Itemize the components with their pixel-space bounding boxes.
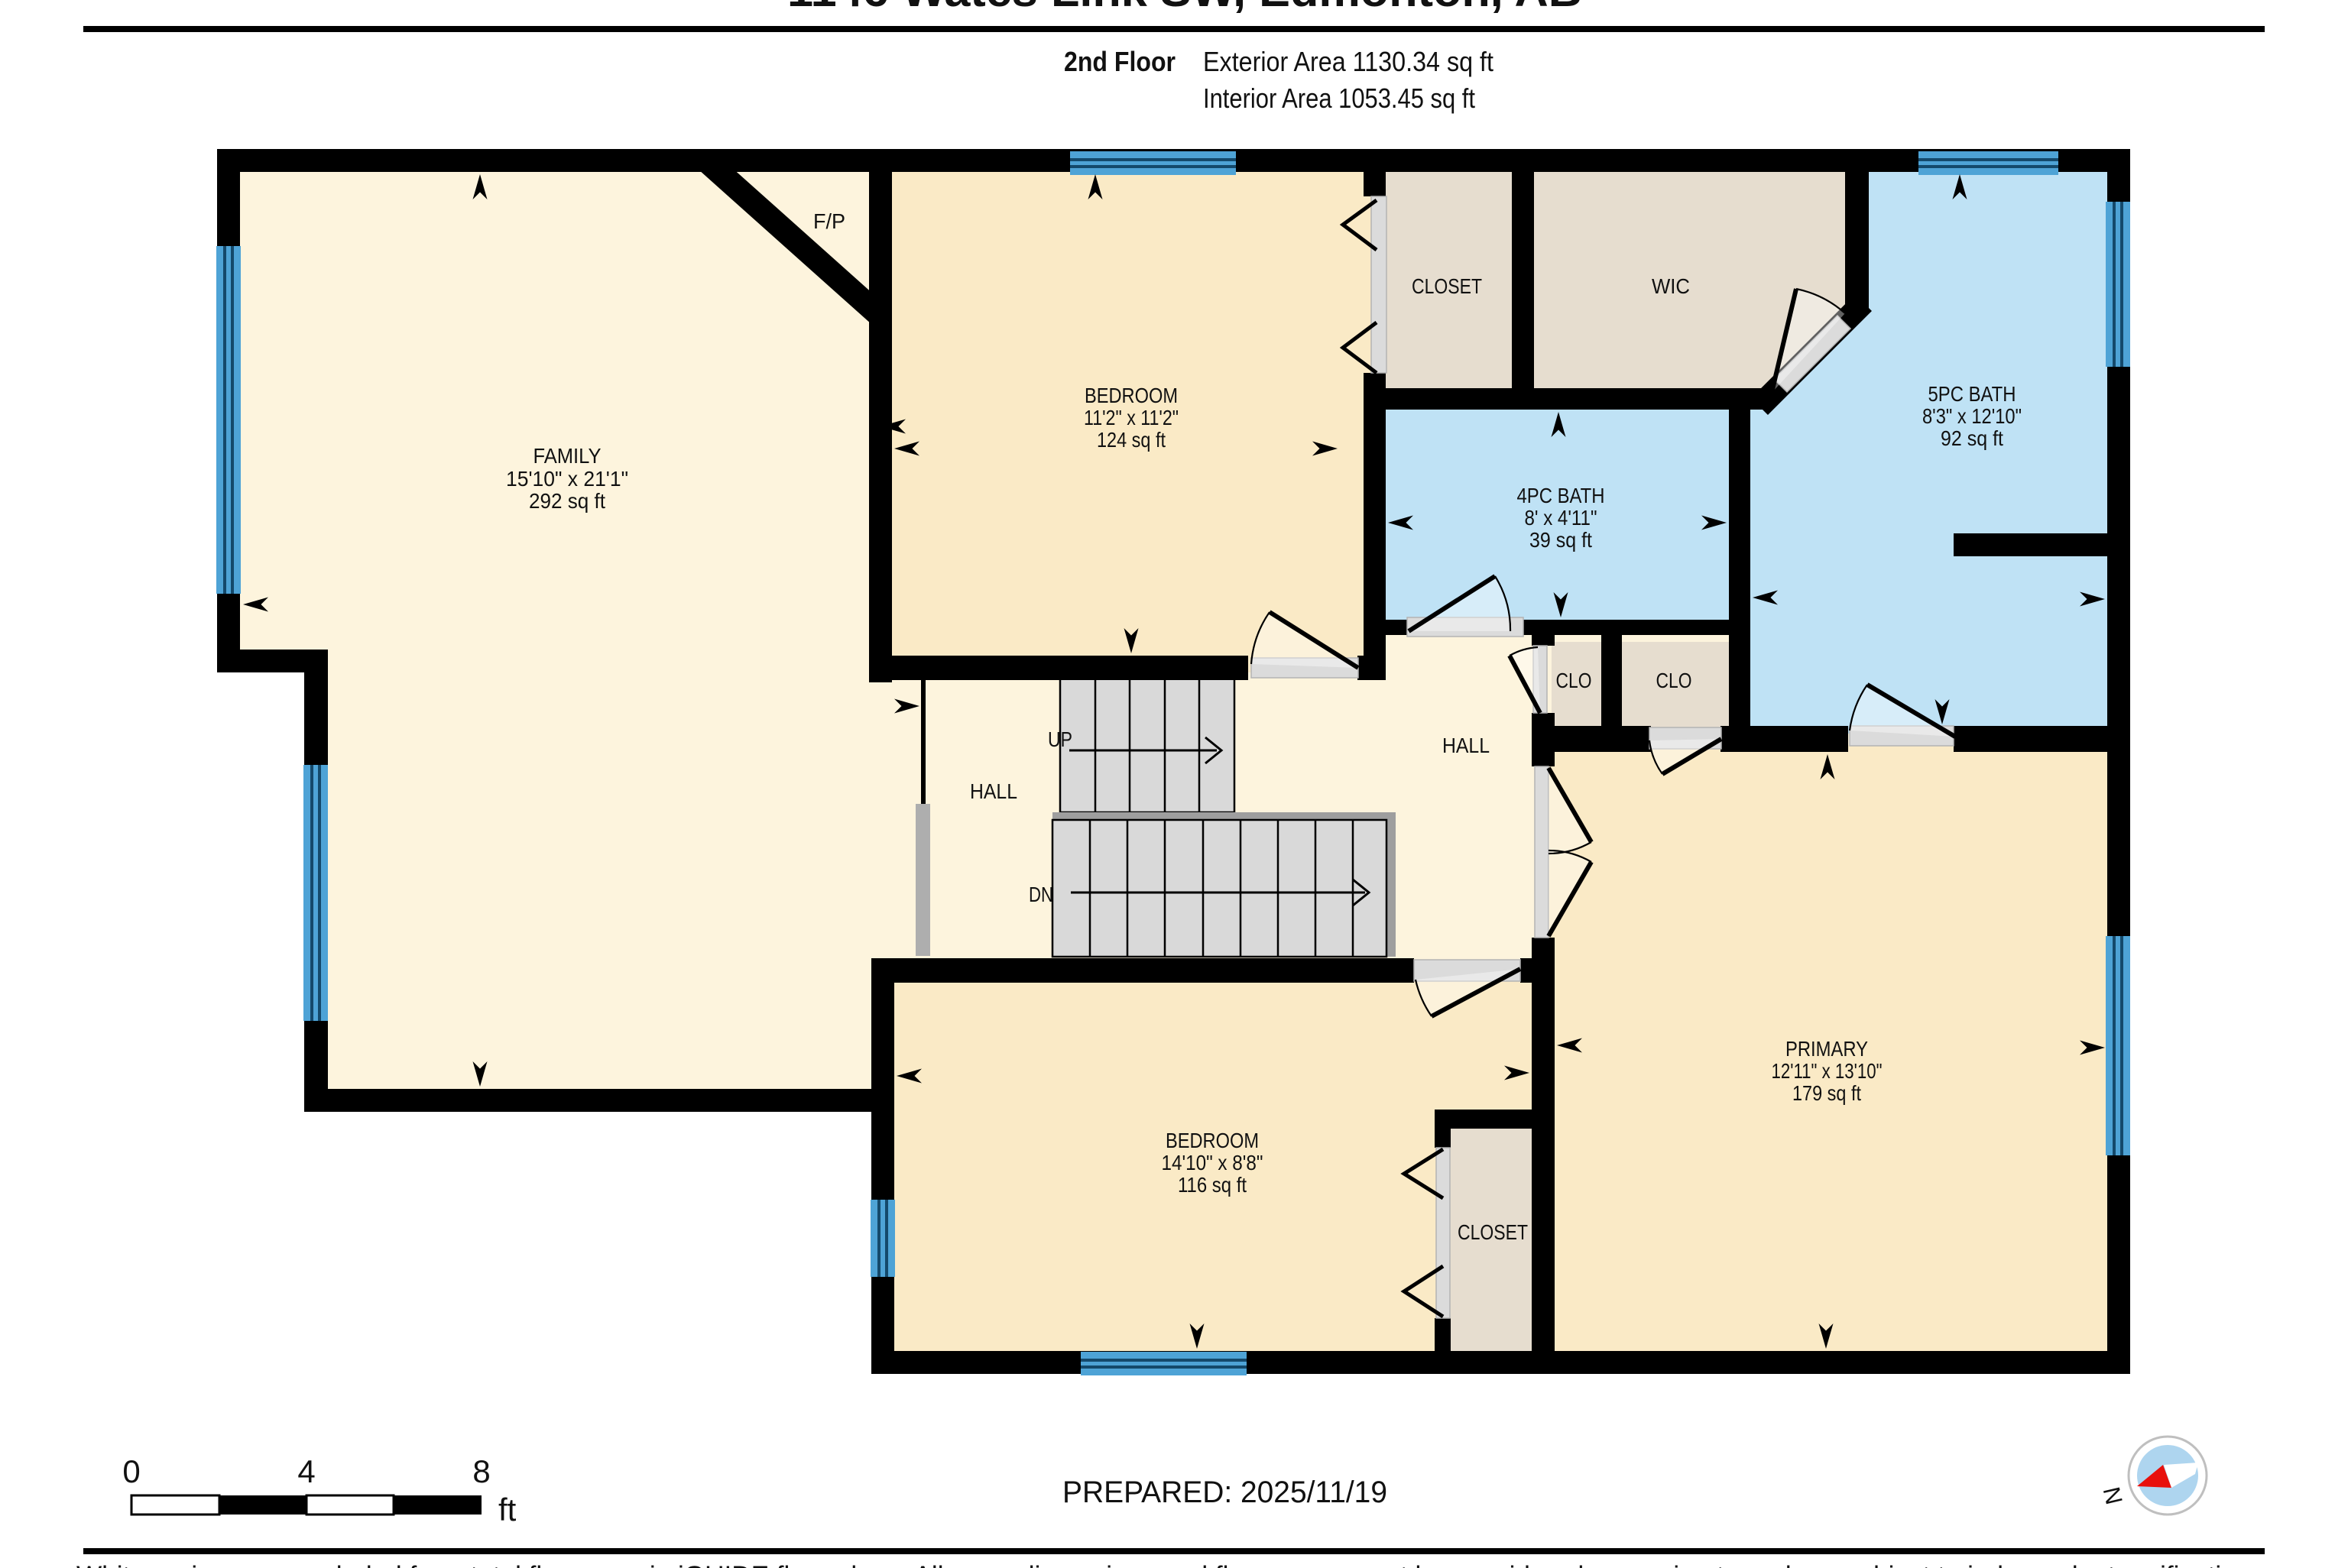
svg-text:PRIMARY: PRIMARY	[1785, 1037, 1868, 1061]
svg-text:8'3" x 12'10": 8'3" x 12'10"	[1922, 404, 2022, 428]
svg-text:92 sq ft: 92 sq ft	[1941, 426, 2003, 450]
svg-text:CLOSET: CLOSET	[1458, 1220, 1528, 1244]
svg-text:WIC: WIC	[1652, 274, 1690, 298]
svg-text:White regions are excluded fro: White regions are excluded from total fl…	[76, 1561, 2259, 1568]
svg-text:UP: UP	[1048, 727, 1072, 751]
svg-text:HALL: HALL	[1442, 734, 1490, 757]
svg-text:8: 8	[472, 1453, 490, 1489]
svg-text:5PC BATH: 5PC BATH	[1928, 382, 2016, 406]
svg-text:292 sq ft: 292 sq ft	[529, 489, 605, 513]
svg-text:2nd Floor: 2nd Floor	[1064, 46, 1176, 77]
svg-text:0: 0	[122, 1453, 140, 1489]
svg-text:CLOSET: CLOSET	[1412, 274, 1482, 298]
svg-text:1146 Wates Link SW, Edmonton,: 1146 Wates Link SW, Edmonton, AB	[787, 0, 1582, 16]
svg-text:F/P: F/P	[813, 209, 845, 233]
svg-text:39 sq ft: 39 sq ft	[1529, 528, 1592, 552]
svg-text:Interior Area 1053.45 sq ft: Interior Area 1053.45 sq ft	[1203, 83, 1475, 114]
svg-text:DN: DN	[1029, 883, 1053, 906]
svg-text:CLO: CLO	[1656, 669, 1692, 692]
svg-text:HALL: HALL	[970, 779, 1017, 803]
svg-text:15'10" x 21'1": 15'10" x 21'1"	[506, 467, 628, 491]
svg-text:PREPARED: 2025/11/19: PREPARED: 2025/11/19	[1062, 1476, 1387, 1509]
svg-text:4: 4	[297, 1453, 315, 1489]
svg-text:179 sq ft: 179 sq ft	[1792, 1081, 1861, 1105]
svg-text:ft: ft	[498, 1492, 517, 1528]
svg-text:11'2" x 11'2": 11'2" x 11'2"	[1084, 406, 1179, 429]
svg-text:Exterior Area 1130.34 sq ft: Exterior Area 1130.34 sq ft	[1203, 46, 1493, 77]
svg-text:CLO: CLO	[1556, 669, 1592, 692]
svg-text:124 sq ft: 124 sq ft	[1097, 428, 1166, 452]
svg-text:FAMILY: FAMILY	[533, 444, 602, 468]
svg-text:8' x 4'11": 8' x 4'11"	[1525, 506, 1597, 530]
svg-text:116 sq ft: 116 sq ft	[1178, 1173, 1247, 1197]
svg-text:14'10" x 8'8": 14'10" x 8'8"	[1162, 1151, 1263, 1174]
svg-text:4PC BATH: 4PC BATH	[1517, 484, 1605, 507]
svg-text:BEDROOM: BEDROOM	[1085, 384, 1178, 407]
svg-text:BEDROOM: BEDROOM	[1166, 1129, 1259, 1152]
svg-text:12'11" x 13'10": 12'11" x 13'10"	[1772, 1059, 1883, 1083]
